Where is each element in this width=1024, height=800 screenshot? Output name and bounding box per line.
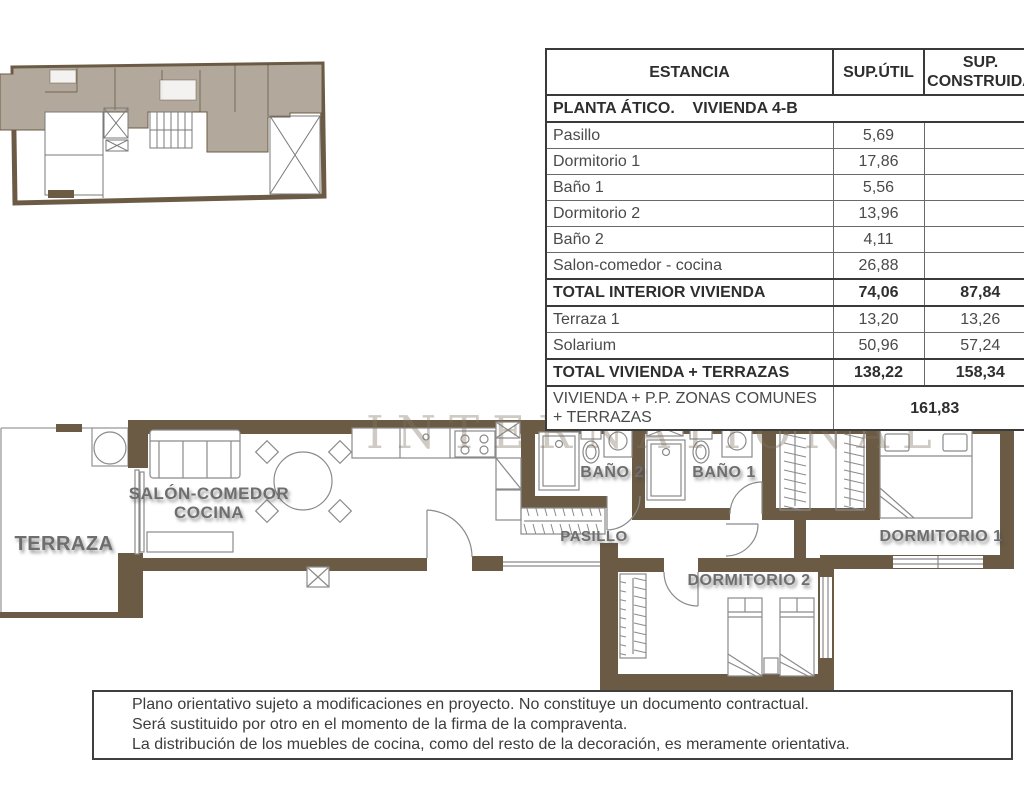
cell-sup-construida: 57,24 [924, 333, 1024, 360]
key-plan-notch [160, 80, 196, 100]
cell-estancia: Dormitorio 1 [546, 149, 833, 175]
cell-sup-util: 50,96 [833, 333, 924, 360]
cell-sup-util: 138,22 [833, 359, 924, 386]
single-bed [780, 598, 814, 676]
room-label-salon-line2: COCINA [174, 503, 244, 522]
disclaimer-box: Plano orientativo sujeto a modificacione… [92, 690, 1013, 760]
sideboard [147, 532, 233, 552]
cell-sup-util: 17,86 [833, 149, 924, 175]
cell-sup-construida [924, 175, 1024, 201]
cell-sup-util: 13,96 [833, 201, 924, 227]
cell-estancia: Baño 2 [546, 227, 833, 253]
door-salon [427, 510, 472, 558]
table-row: Dormitorio 213,96 [546, 201, 1024, 227]
pillar [307, 567, 329, 587]
header-estancia: ESTANCIA [546, 49, 833, 95]
door-hall [726, 524, 758, 556]
cell-estancia: TOTAL INTERIOR VIVIENDA [546, 279, 833, 306]
room-label-salon: SALÓN-COMEDOR COCINA [124, 484, 294, 522]
cell-sup-util: 4,11 [833, 227, 924, 253]
areas-table: ESTANCIA SUP.ÚTIL SUP. CONSTRUIDA PLANTA… [545, 48, 1024, 431]
cell-sup-util: 13,20 [833, 306, 924, 333]
terrace-table [94, 432, 126, 464]
cell-sup-construida [924, 122, 1024, 149]
disclaimer-line: Plano orientativo sujeto a modificacione… [132, 695, 1003, 715]
cell-sup-construida: 87,84 [924, 279, 1024, 306]
cell-sup-construida: 158,34 [924, 359, 1024, 386]
cell-sup-construida [924, 227, 1024, 253]
header-sup-construida: SUP. CONSTRUIDA [924, 49, 1024, 95]
door-bathroom1 [730, 482, 762, 514]
cell-estancia: Solarium [546, 333, 833, 360]
cell-sup-util: 26,88 [833, 253, 924, 280]
table-row: VIVIENDA + P.P. ZONAS COMUNES + TERRAZAS… [546, 386, 1024, 430]
cell-sup-construida [924, 201, 1024, 227]
room-label-bano2: BAÑO 2 [580, 464, 643, 482]
section-title: PLANTA ÁTICO. VIVIENDA 4-B [546, 95, 1024, 122]
cell-sup-util: 74,06 [833, 279, 924, 306]
cell-estancia: TOTAL VIVIENDA + TERRAZAS [546, 359, 833, 386]
room-label-dormitorio2: DORMITORIO 2 [687, 572, 810, 590]
wardrobe [620, 574, 646, 658]
cell-estancia: Salon-comedor - cocina [546, 253, 833, 280]
table-section-row: PLANTA ÁTICO. VIVIENDA 4-B [546, 95, 1024, 122]
room-label-dormitorio1: DORMITORIO 1 [879, 528, 1002, 546]
cell-sup-util: 5,69 [833, 122, 924, 149]
header-sup-util: SUP.ÚTIL [833, 49, 924, 95]
cell-estancia: Terraza 1 [546, 306, 833, 333]
room-label-terraza: TERRAZA [14, 533, 113, 556]
disclaimer-line: La distribución de los muebles de cocina… [132, 735, 1003, 755]
plan-sheet: INTERNATIONAL ESTANCIA SUP.ÚTIL SUP. CON… [0, 0, 1024, 800]
table-row: Baño 24,11 [546, 227, 1024, 253]
key-plan [0, 64, 324, 203]
table-total-row: TOTAL VIVIENDA + TERRAZAS138,22158,34 [546, 359, 1024, 386]
cell-estancia: Baño 1 [546, 175, 833, 201]
cell-estancia: VIVIENDA + P.P. ZONAS COMUNES + TERRAZAS [546, 386, 833, 430]
cell-sup-construida: 13,26 [924, 306, 1024, 333]
sofa [150, 430, 240, 478]
room-label-pasillo: PASILLO [560, 528, 627, 545]
table-row: Dormitorio 117,86 [546, 149, 1024, 175]
table-row: Pasillo5,69 [546, 122, 1024, 149]
cell-sup-util: 161,83 [833, 386, 1024, 430]
single-bed [728, 598, 762, 676]
room-label-salon-line1: SALÓN-COMEDOR [129, 484, 289, 503]
table-row: Terraza 113,2013,26 [546, 306, 1024, 333]
key-plan-notch [50, 70, 76, 83]
floor-plan [0, 420, 1014, 690]
cell-estancia: Pasillo [546, 122, 833, 149]
cell-sup-util: 5,56 [833, 175, 924, 201]
cell-sup-construida [924, 253, 1024, 280]
areas-table-body: PLANTA ÁTICO. VIVIENDA 4-B Pasillo5,69Do… [546, 95, 1024, 430]
table-header-row: ESTANCIA SUP.ÚTIL SUP. CONSTRUIDA [546, 49, 1024, 95]
key-plan-wall-stub [48, 190, 74, 198]
table-row: Solarium50,9657,24 [546, 333, 1024, 360]
table-row: Salon-comedor - cocina26,88 [546, 253, 1024, 280]
table-total-row: TOTAL INTERIOR VIVIENDA74,0687,84 [546, 279, 1024, 306]
cell-sup-construida [924, 149, 1024, 175]
room-label-bano1: BAÑO 1 [692, 464, 755, 482]
disclaimer-line: Será sustituido por otro en el momento d… [132, 715, 1003, 735]
cell-estancia: Dormitorio 2 [546, 201, 833, 227]
table-row: Baño 15,56 [546, 175, 1024, 201]
nightstand [764, 658, 778, 674]
